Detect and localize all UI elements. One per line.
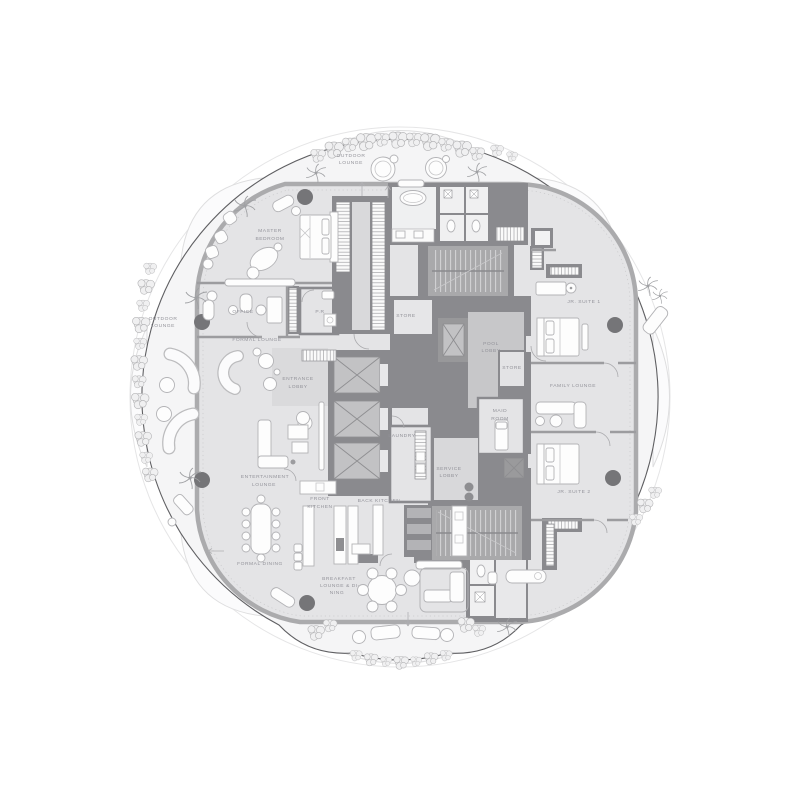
elevator-bank bbox=[334, 357, 388, 479]
entrance-lobby-label: LOBBY bbox=[288, 384, 307, 390]
master-bed bbox=[300, 212, 338, 262]
media-credenza bbox=[225, 279, 295, 286]
maid-room-label: MAID bbox=[493, 408, 507, 414]
sink bbox=[465, 493, 474, 502]
maid-room-label: ROOM bbox=[491, 416, 508, 422]
entrance-lobby-label: ENTRANCE bbox=[282, 376, 313, 382]
toilet bbox=[472, 220, 480, 232]
breakfast-lounge-dining-label: BREAKFAST bbox=[322, 576, 356, 582]
jr-suite-2-label: JR. SUITE 2 bbox=[557, 489, 590, 495]
outdoor-lounge-left-label: LOUNGE bbox=[151, 323, 175, 329]
front-kitchen-label: FRONT bbox=[310, 496, 330, 502]
wardrobe-strip bbox=[289, 288, 297, 332]
master-bedroom-label: MASTER bbox=[258, 228, 282, 234]
wardrobe-strip bbox=[372, 202, 385, 330]
closet-corridor bbox=[352, 202, 370, 330]
entrance-steps bbox=[302, 350, 336, 361]
service-lobby-label: LOBBY bbox=[439, 473, 458, 479]
store-upper-label: STORE bbox=[396, 313, 416, 319]
wardrobe-strip bbox=[546, 524, 554, 566]
laundry-label: LAUNDRY bbox=[388, 433, 415, 439]
toilet bbox=[447, 220, 455, 232]
jr-suite-1-label: JR. SUITE 1 bbox=[567, 299, 600, 305]
outdoor-lounge-left-label: OUTDOOR bbox=[149, 316, 178, 322]
tv-wall bbox=[319, 402, 324, 470]
floor-plan-canvas: OUTDOORLOUNGEMASTERBEDROOMOFFICEP.ROUTDO… bbox=[0, 0, 800, 800]
store-lower-label: STORE bbox=[502, 365, 522, 371]
jr2-bathroom bbox=[470, 560, 526, 618]
dumbwaiter-lift bbox=[504, 458, 524, 478]
service-lift bbox=[438, 318, 468, 362]
master-bedroom-label: BEDROOM bbox=[255, 236, 284, 242]
floor-plan-page: OUTDOORLOUNGEMASTERBEDROOMOFFICEP.ROUTDO… bbox=[0, 0, 800, 800]
pool-lobby-label: LOBBY bbox=[481, 348, 500, 354]
entertainment-lounge-label: ENTERTAINMENT bbox=[241, 474, 289, 480]
pool-lobby-label: POOL bbox=[483, 341, 499, 347]
powder-room-label: P.R bbox=[315, 309, 324, 315]
wardrobe-strip bbox=[550, 267, 579, 275]
formal-dining-label: FORMAL DINING bbox=[237, 561, 283, 567]
formal-lounge-label: FORMAL LOUNGE bbox=[232, 337, 282, 343]
outdoor-lounge-top-label: LOUNGE bbox=[339, 160, 363, 166]
breakfast-lounge-dining-label: NING bbox=[330, 590, 344, 596]
toilet bbox=[322, 291, 334, 299]
service-lobby-label: SERVICE bbox=[436, 466, 461, 472]
toilet bbox=[488, 572, 497, 584]
outdoor-lounge-top-label: OUTDOOR bbox=[337, 153, 366, 159]
back-kitchen-label: BACK KITCHEN bbox=[358, 498, 401, 504]
front-kitchen-label: KITCHEN bbox=[307, 504, 332, 510]
office-label: OFFICE bbox=[232, 309, 253, 315]
stair-upper bbox=[428, 246, 508, 296]
entertainment-lounge-label: LOUNGE bbox=[252, 482, 276, 488]
stair-lower bbox=[432, 506, 522, 560]
jr2-vanity bbox=[506, 570, 546, 583]
breakfast-lounge-dining-label: LOUNGE & DI- bbox=[320, 583, 360, 589]
family-lounge-label: FAMILY LOUNGE bbox=[550, 383, 596, 389]
sink bbox=[465, 483, 474, 492]
